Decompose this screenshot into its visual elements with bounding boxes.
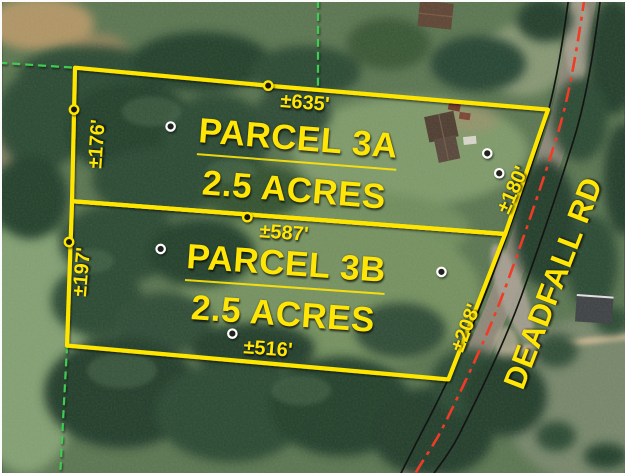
boundary-vertex-marker-icon xyxy=(70,105,78,113)
boundary-vertex-marker-icon xyxy=(243,213,251,221)
aerial-basemap xyxy=(2,2,625,473)
aerial-imagery xyxy=(2,2,625,473)
survey-point-marker-icon xyxy=(495,169,503,177)
boundary-vertex-marker-icon xyxy=(65,238,73,246)
survey-point-marker-icon xyxy=(437,268,445,276)
photo-grain xyxy=(2,2,624,473)
survey-point-marker-icon xyxy=(483,149,491,157)
survey-point-marker-icon xyxy=(156,245,164,253)
boundary-vertex-marker-icon xyxy=(264,81,272,89)
parcel-aerial-map: ±635' PARCEL 3A 2.5 ACRES ±587' PARCEL 3… xyxy=(0,0,625,473)
survey-point-marker-icon xyxy=(228,329,236,337)
survey-point-marker-icon xyxy=(166,122,174,130)
